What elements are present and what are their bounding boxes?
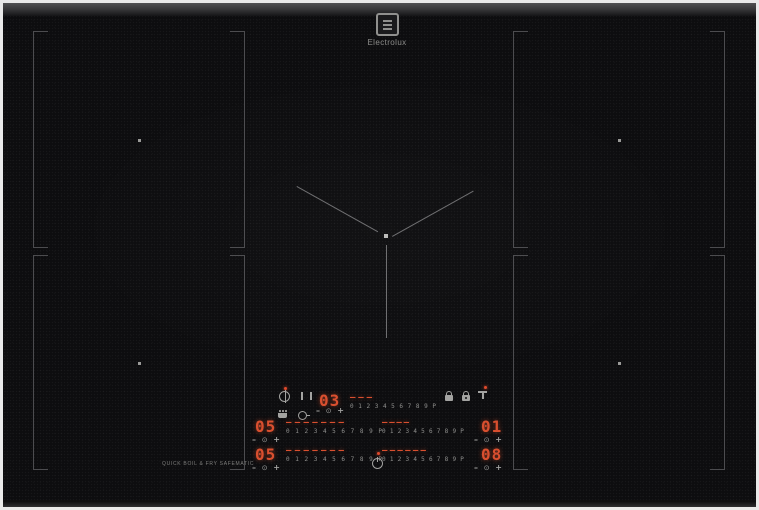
brand-logo: Electrolux [363,13,411,47]
zone-center-dot [138,362,141,365]
controls-left-zone-2: – ⊙ + [252,464,280,472]
zone-center-dot [618,139,621,142]
display-left-zone-1[interactable]: 05 [255,420,276,433]
center-zone-line-down [386,245,387,338]
center-zone-dot [384,234,388,238]
display-right-zone-1[interactable]: 01 [481,420,502,433]
ok-indicator[interactable]: ⊙ [262,465,268,472]
slider-scale-left-zone-1[interactable]: 0123456789P [286,429,382,435]
zone-rear-right [513,31,725,248]
dashes-right-zone-1: –––– [382,421,409,426]
electrolux-logo-icon [376,13,399,36]
plus-button[interactable]: + [273,436,280,444]
slider-scale-right-zone-1[interactable]: 0123456789P [382,429,464,435]
zone-front-right [513,255,725,470]
power-indicator-dot [377,452,380,455]
minus-button[interactable]: – [474,464,478,472]
timer-level-dashes: ––– [350,396,372,401]
zone-rear-left [33,31,245,248]
bridge-icon[interactable] [279,391,290,402]
controls-right-zone-2: – ⊙ + [474,464,502,472]
timer-minus-button[interactable]: – [316,407,320,415]
display-left-zone-2[interactable]: 05 [255,448,276,461]
brand-name: Electrolux [363,38,411,47]
cooktop-surface: Electrolux 03 ––– 0123456789 [0,0,759,510]
photo-border [0,0,759,3]
ok-indicator[interactable]: ⊙ [484,465,490,472]
display-right-zone-2[interactable]: 08 [481,448,502,461]
timer-ok-indicator[interactable]: ⊙ [326,408,332,415]
hob2hood-icon[interactable] [478,391,487,399]
child-lock-icon[interactable] [462,395,470,401]
timer-controls: – ⊙ + [316,407,344,415]
controls-right-zone-1: – ⊙ + [474,436,502,444]
ok-indicator[interactable]: ⊙ [484,437,490,444]
dashes-right-zone-2: –––––– [382,449,426,454]
controls-left-zone-1: – ⊙ + [252,436,280,444]
minus-button[interactable]: – [474,436,478,444]
zone-front-left [33,255,245,470]
pause-icon[interactable] [301,392,312,400]
slider-scale-left-zone-2[interactable]: 0123456789P [286,457,382,463]
timer-slider-scale[interactable]: 0123456789P [350,404,436,410]
ok-indicator[interactable]: ⊙ [262,437,268,444]
plus-button[interactable]: + [495,436,502,444]
minus-button[interactable]: – [252,436,256,444]
feature-label: QUICK BOIL & FRY SAFEMATIC [162,461,254,467]
cooktop-photo: Electrolux 03 ––– 0123456789 [0,0,759,510]
lock-icon[interactable] [445,395,453,401]
plus-button[interactable]: + [495,464,502,472]
center-zone-line-left [297,186,379,232]
hob2hood-indicator-dot [484,386,487,389]
dashes-left-zone-1: ––––––– [286,421,344,426]
center-zone-line-right [392,191,474,237]
plus-button[interactable]: + [273,464,280,472]
zone-center-dot [618,362,621,365]
photo-border [0,0,3,510]
slider-scale-right-zone-2[interactable]: 0123456789P [382,457,464,463]
timer-plus-button[interactable]: + [337,407,344,415]
zone-center-dot [138,139,141,142]
dashes-left-zone-2: ––––––– [286,449,344,454]
